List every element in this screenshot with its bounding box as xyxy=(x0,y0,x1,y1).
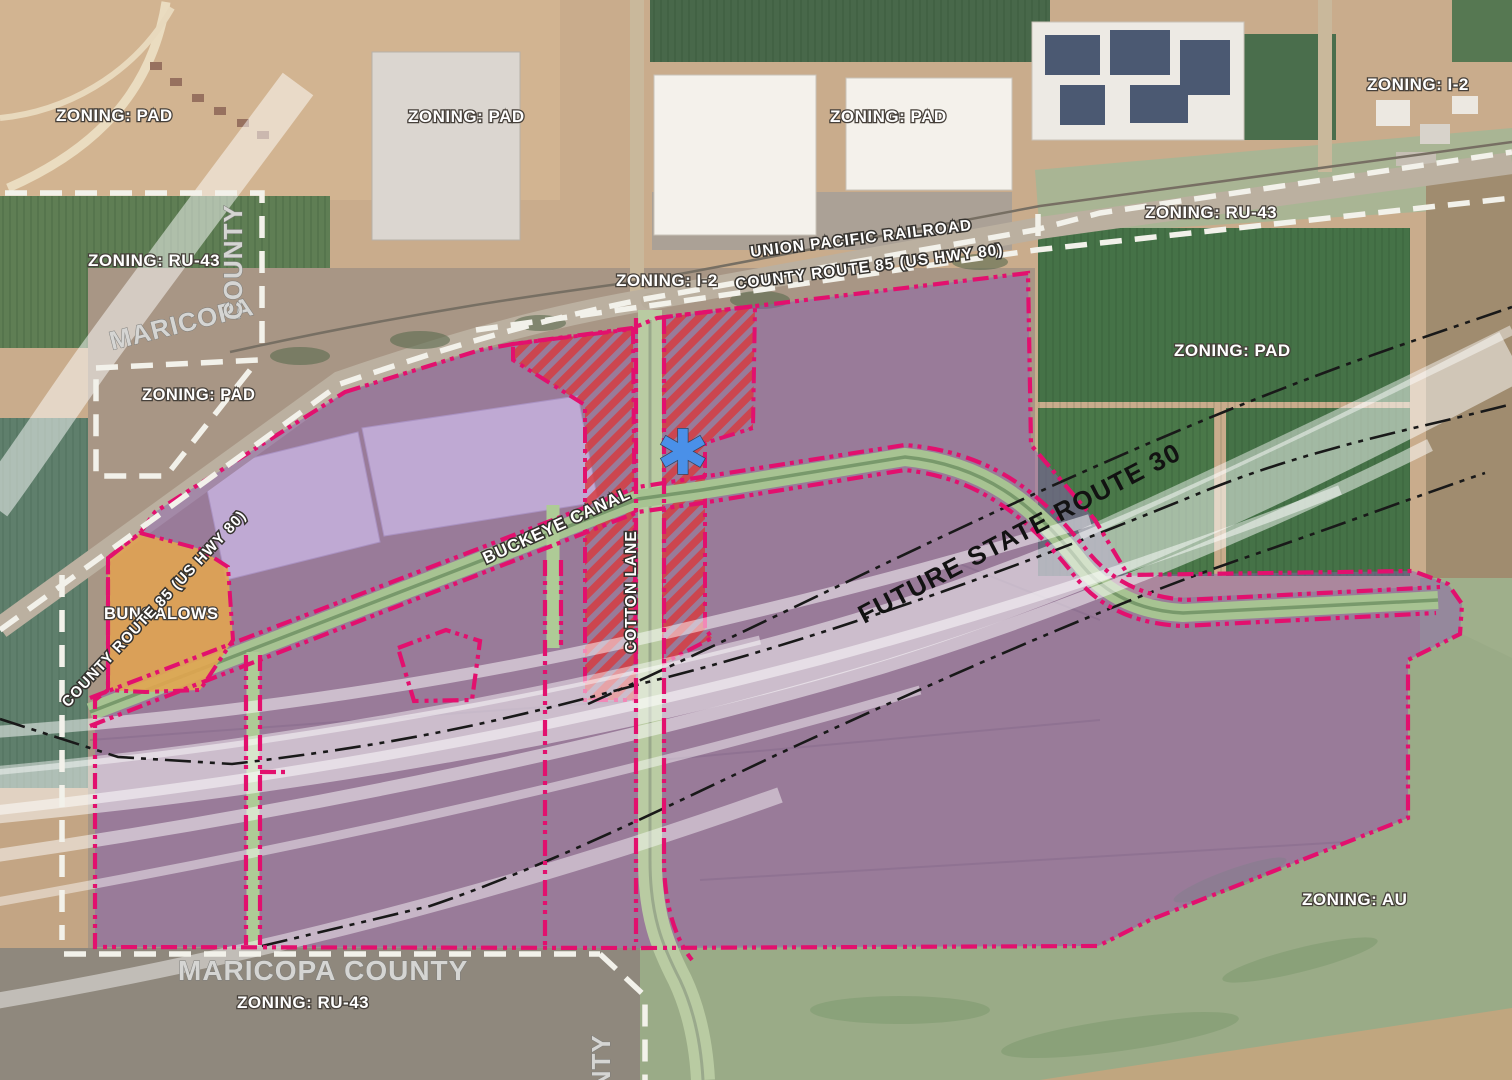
label-zoning-ru43-ne: ZONING: RU-43 xyxy=(1145,203,1277,222)
label-cotton-lane: COTTON LANE xyxy=(623,530,640,653)
label-zoning-ru43-nw: ZONING: RU-43 xyxy=(88,251,220,270)
building-warehouse-1 xyxy=(654,75,816,235)
building-top-left xyxy=(372,52,520,240)
label-county-nw: COUNTY xyxy=(218,204,248,320)
site-location-marker-asterisk: ✱ xyxy=(657,416,709,489)
label-zoning-pad-nw: ZONING: PAD xyxy=(56,106,173,125)
label-county-south: COUNTY xyxy=(586,1034,616,1080)
label-zoning-pad-top-left: ZONING: PAD xyxy=(408,107,525,126)
zoning-map: ZONING: PAD ZONING: RU-43 MARICOPA COUNT… xyxy=(0,0,1512,1080)
label-zoning-pad-east: ZONING: PAD xyxy=(1174,341,1291,360)
zoning-map-canvas: ZONING: PAD ZONING: RU-43 MARICOPA COUNT… xyxy=(0,0,1512,1080)
label-zoning-ru43-south: ZONING: RU-43 xyxy=(237,993,369,1012)
label-zoning-au: ZONING: AU xyxy=(1302,890,1407,909)
label-zoning-pad-west: ZONING: PAD xyxy=(142,386,255,404)
building-warehouse-2 xyxy=(846,78,1012,190)
label-zoning-i2-ne: ZONING: I-2 xyxy=(1367,75,1469,94)
label-zoning-pad-top-center: ZONING: PAD xyxy=(830,107,947,126)
label-maricopa-county-south: MARICOPA COUNTY xyxy=(178,955,468,986)
label-zoning-i2-top: ZONING: I-2 xyxy=(616,271,718,290)
